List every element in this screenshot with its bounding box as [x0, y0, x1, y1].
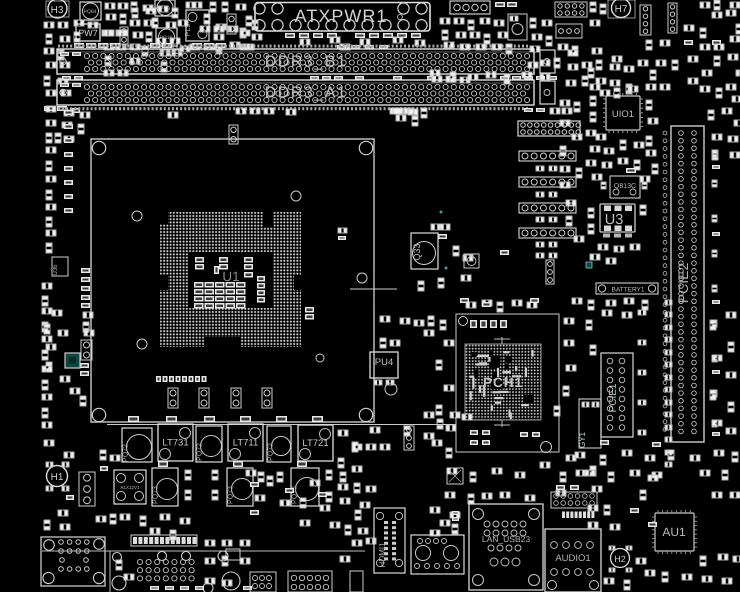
svg-text:GY1: GY1	[578, 431, 587, 448]
svg-text:Q33: Q33	[412, 243, 422, 260]
svg-text:H1: H1	[51, 472, 64, 483]
svg-text:Q813C: Q813C	[614, 183, 636, 190]
svg-text:BATTERY1: BATTERY1	[611, 286, 644, 293]
svg-text:PCIE1: PCIE1	[608, 383, 619, 412]
svg-text:U36: U36	[53, 264, 59, 276]
svg-text:PCH1: PCH1	[483, 375, 523, 390]
svg-text:PQ72: PQ72	[268, 443, 275, 461]
svg-text:AU1: AU1	[662, 525, 686, 539]
svg-text:U3: U3	[605, 212, 624, 228]
svg-text:PQ73: PQ73	[153, 486, 160, 504]
svg-text:PCIE2: PCIE2	[675, 263, 691, 304]
svg-text:PQ64: PQ64	[84, 9, 97, 15]
svg-text:LT731: LT731	[162, 437, 188, 448]
svg-text:UIO1: UIO1	[612, 109, 634, 120]
svg-text:LT721: LT721	[302, 438, 328, 449]
svg-text:AUDIO1: AUDIO1	[555, 553, 590, 564]
svg-text:ATXPWR1: ATXPWR1	[295, 6, 388, 26]
svg-text:A1X12V1: A1X12V1	[120, 485, 140, 490]
svg-text:PQ73: PQ73	[228, 486, 235, 504]
svg-text:PQ72: PQ72	[197, 443, 204, 461]
svg-text:H7: H7	[615, 4, 628, 15]
svg-text:H2: H2	[614, 554, 626, 564]
svg-text:PW7: PW7	[78, 28, 98, 38]
svg-text:U1: U1	[222, 269, 239, 284]
svg-text:PU4: PU4	[375, 357, 393, 368]
svg-text:DDR3_A1: DDR3_A1	[265, 84, 348, 101]
svg-text:LT711: LT711	[233, 437, 259, 448]
svg-text:PQ72: PQ72	[123, 444, 130, 462]
svg-text:H3: H3	[51, 5, 64, 16]
svg-text:LAN_USB23: LAN_USB23	[482, 534, 530, 544]
svg-text:DDR3_B1: DDR3_B1	[265, 53, 348, 70]
svg-text:HDMI1: HDMI1	[378, 542, 387, 567]
